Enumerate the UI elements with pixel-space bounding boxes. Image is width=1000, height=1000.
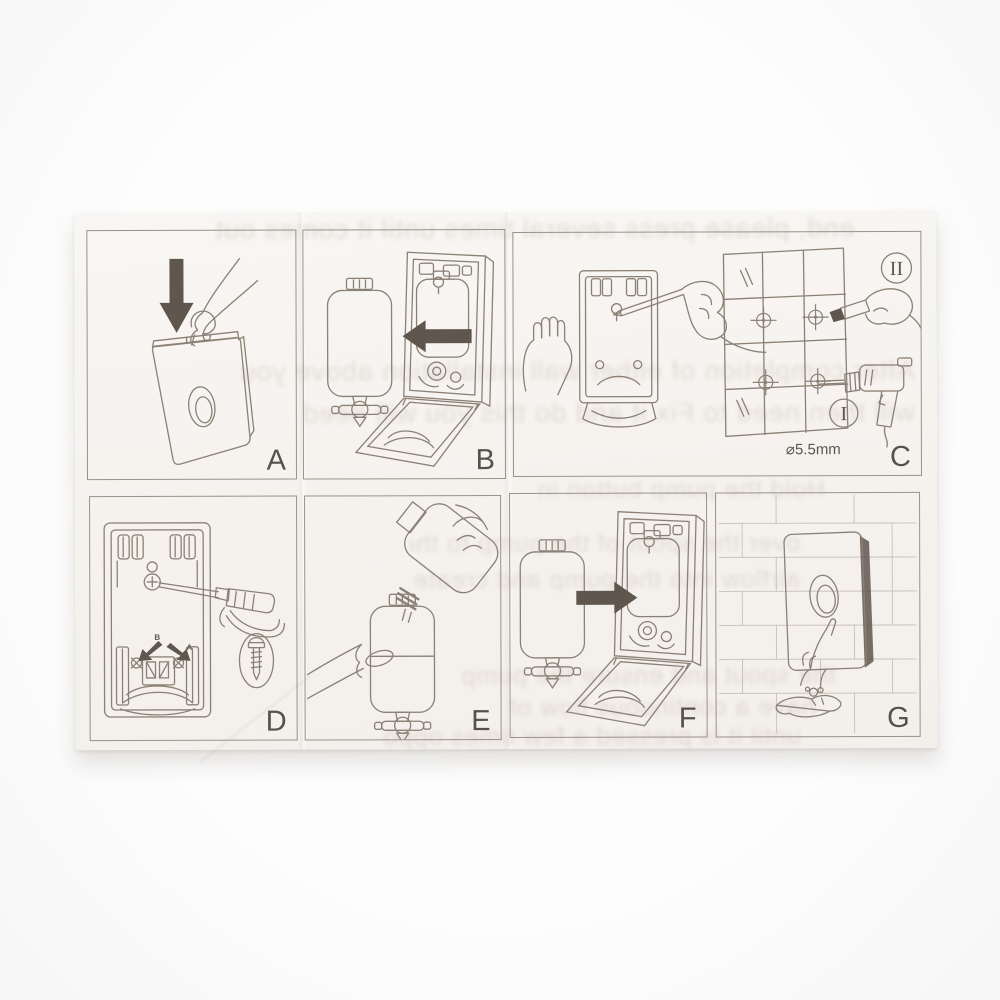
drill-diameter-text: ⌀5.5mm bbox=[786, 441, 841, 458]
soap-bottle-icon bbox=[520, 540, 584, 688]
screw-letter-a: A bbox=[186, 643, 192, 652]
panel-step-e: E bbox=[304, 495, 502, 741]
panel-step-d: B A D bbox=[89, 496, 298, 742]
remove-arrow-icon bbox=[403, 320, 472, 352]
panel-label: B bbox=[476, 444, 496, 477]
step-two-numeral: II bbox=[890, 258, 903, 280]
panel-g-illustration bbox=[716, 493, 920, 737]
panel-label: A bbox=[267, 445, 287, 478]
panel-step-f: F bbox=[509, 492, 708, 738]
panel-step-c: II I ⌀5.5mm C bbox=[512, 231, 922, 477]
soap-bottle-icon bbox=[327, 278, 391, 426]
panel-step-b: B bbox=[302, 229, 506, 480]
panel-label: D bbox=[266, 706, 288, 739]
panel-label: G bbox=[887, 702, 911, 735]
panel-c-illustration: II I ⌀5.5mm bbox=[513, 232, 921, 476]
panel-e-illustration bbox=[305, 496, 501, 740]
step-one-numeral: I bbox=[840, 403, 847, 425]
panel-b-illustration bbox=[303, 230, 505, 479]
panel-d-illustration: B A bbox=[90, 497, 297, 741]
press-down-arrow-icon bbox=[159, 259, 193, 333]
drill-mark-icon bbox=[751, 307, 777, 333]
soap-bottle-icon bbox=[370, 594, 434, 739]
panel-label: F bbox=[679, 702, 698, 735]
panel-step-g: G bbox=[715, 492, 921, 738]
panel-step-a: A bbox=[86, 230, 297, 481]
marker-tip-icon bbox=[830, 308, 845, 322]
drill-mark-icon bbox=[753, 369, 779, 395]
open-dispenser-icon bbox=[566, 511, 705, 725]
panel-label: E bbox=[471, 705, 491, 738]
instruction-sheet: end, please press several times until it… bbox=[74, 211, 937, 750]
panel-label: C bbox=[890, 441, 912, 474]
screw-arrow-left-icon bbox=[138, 641, 162, 661]
screw-letter-b: B bbox=[154, 633, 160, 642]
drill-mark-icon bbox=[805, 368, 831, 394]
drill-mark-icon bbox=[803, 304, 829, 330]
panel-f-illustration bbox=[510, 493, 707, 737]
photo-background: end, please press several times until it… bbox=[0, 0, 1000, 1000]
open-dispenser-icon bbox=[355, 252, 494, 466]
panel-a-illustration bbox=[87, 231, 296, 480]
